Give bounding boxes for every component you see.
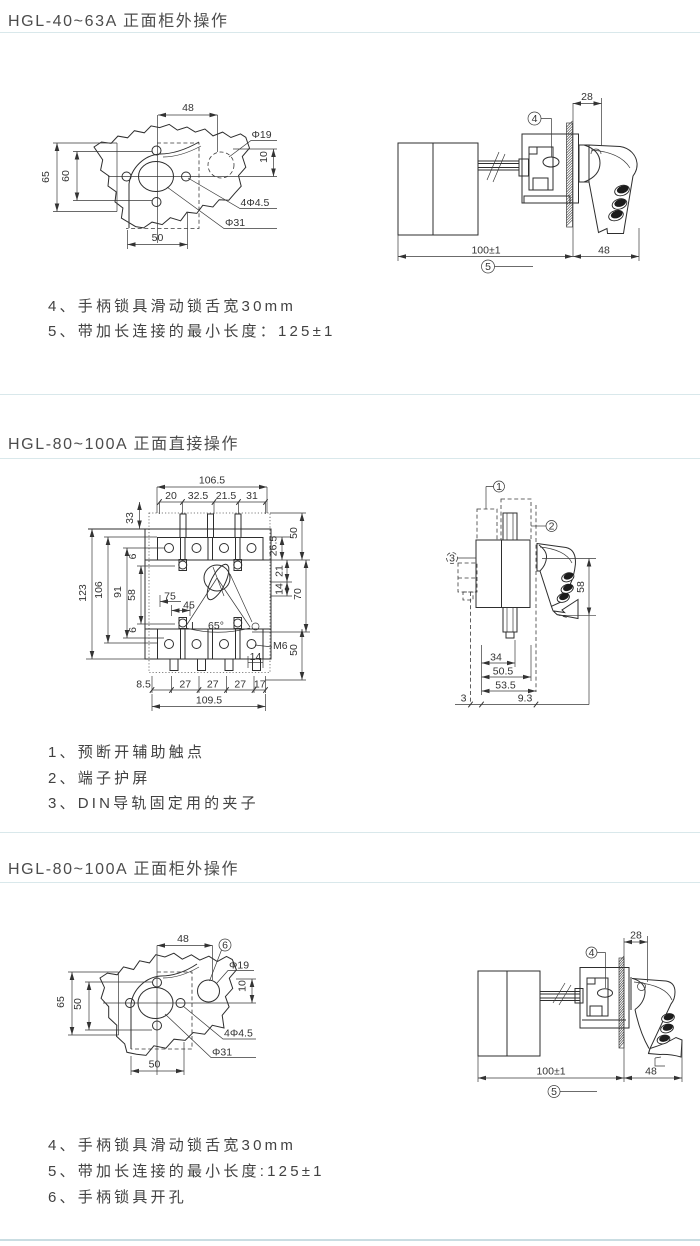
svg-text:48: 48 (598, 245, 610, 257)
svg-text:27: 27 (207, 679, 219, 691)
svg-text:17: 17 (254, 679, 266, 691)
svg-text:4Φ4.5: 4Φ4.5 (224, 1028, 253, 1040)
svg-text:48: 48 (182, 102, 194, 114)
svg-text:2: 2 (549, 521, 555, 533)
svg-text:58: 58 (126, 589, 138, 601)
svg-text:Φ19: Φ19 (252, 129, 272, 141)
svg-text:32.5: 32.5 (188, 490, 209, 502)
svg-text:1: 1 (496, 481, 502, 493)
svg-text:26.5: 26.5 (268, 536, 280, 557)
svg-text:50.5: 50.5 (493, 666, 514, 678)
svg-text:3: 3 (449, 553, 455, 565)
svg-text:34: 34 (490, 652, 502, 664)
svg-text:14: 14 (274, 583, 286, 595)
svg-text:45: 45 (183, 600, 195, 612)
svg-text:53.5: 53.5 (495, 680, 516, 692)
svg-text:100±1: 100±1 (471, 245, 500, 257)
svg-text:Φ19: Φ19 (229, 960, 249, 972)
svg-text:60: 60 (60, 170, 72, 182)
svg-text:6: 6 (222, 940, 228, 952)
svg-text:65: 65 (55, 996, 67, 1008)
svg-text:27: 27 (234, 679, 246, 691)
svg-text:5: 5 (551, 1086, 557, 1098)
svg-text:31: 31 (246, 490, 258, 502)
svg-text:Φ31: Φ31 (212, 1047, 232, 1059)
svg-text:58: 58 (575, 581, 587, 593)
svg-text:75: 75 (164, 591, 176, 603)
svg-text:10: 10 (258, 151, 270, 163)
svg-text:Φ31: Φ31 (225, 217, 245, 229)
svg-text:27: 27 (179, 679, 191, 691)
svg-text:6: 6 (127, 553, 139, 559)
svg-text:28: 28 (630, 930, 642, 942)
svg-text:50: 50 (72, 998, 84, 1010)
svg-text:4: 4 (589, 947, 595, 959)
svg-text:3: 3 (461, 693, 467, 705)
svg-text:8.5: 8.5 (136, 679, 151, 691)
svg-text:M6: M6 (273, 640, 288, 652)
svg-text:28: 28 (581, 91, 593, 103)
svg-text:65: 65 (40, 171, 52, 183)
svg-text:4: 4 (532, 113, 538, 125)
svg-text:48: 48 (177, 933, 189, 945)
svg-text:91: 91 (112, 586, 124, 598)
svg-text:33: 33 (124, 512, 136, 524)
svg-text:9.3: 9.3 (518, 693, 533, 705)
svg-text:50: 50 (152, 232, 164, 244)
svg-text:50: 50 (288, 644, 300, 656)
svg-text:48: 48 (645, 1066, 657, 1078)
svg-text:100±1: 100±1 (536, 1066, 565, 1078)
svg-text:50: 50 (149, 1059, 161, 1071)
svg-text:109.5: 109.5 (196, 695, 222, 707)
svg-text:4Φ4.5: 4Φ4.5 (241, 197, 270, 209)
svg-text:5: 5 (485, 261, 491, 273)
svg-text:70: 70 (292, 588, 304, 600)
svg-text:65°: 65° (208, 620, 224, 632)
svg-text:14: 14 (250, 651, 262, 663)
svg-text:106.5: 106.5 (199, 475, 225, 487)
svg-text:20: 20 (165, 490, 177, 502)
svg-text:123: 123 (77, 584, 89, 602)
svg-text:I: I (191, 620, 194, 632)
svg-text:10: 10 (237, 980, 249, 992)
svg-text:6: 6 (127, 627, 139, 633)
svg-text:106: 106 (93, 581, 105, 599)
svg-text:21.5: 21.5 (216, 490, 237, 502)
svg-text:21: 21 (274, 565, 286, 577)
